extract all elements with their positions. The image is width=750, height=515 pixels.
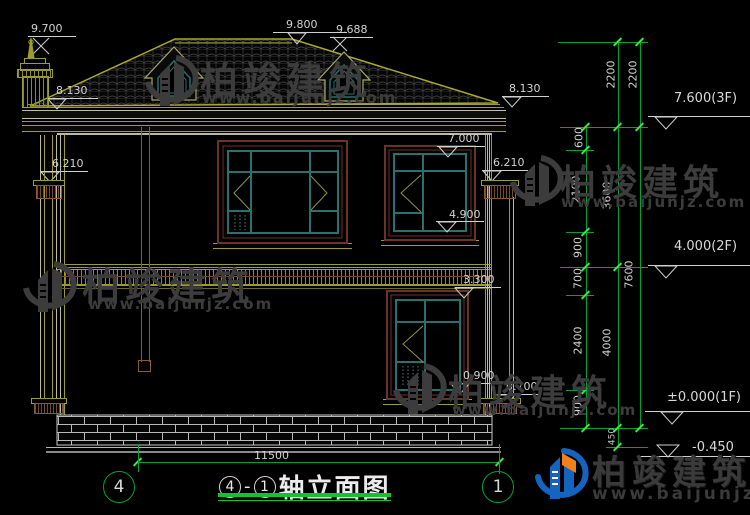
watermark-building-icon xyxy=(396,366,444,414)
watermark-url: www.baijunjz.com xyxy=(561,193,746,211)
watermark-building-icon xyxy=(26,264,74,312)
watermark-url: www.baijunjz.com xyxy=(452,401,637,419)
cad-elevation-drawing: 9.700 9.800 9.688 8.130 8.130 7.000 6.21… xyxy=(0,0,750,515)
watermark-url: www.baijunjz.com xyxy=(88,295,273,313)
brand-logo-icon xyxy=(528,443,592,507)
watermark-building-icon xyxy=(513,158,561,206)
brand-logo: 柏竣建筑 www.baijunjz.com xyxy=(528,443,748,513)
brand-logo-url: www.baijunjz.com xyxy=(592,484,750,504)
watermark-building-icon xyxy=(148,58,196,106)
watermark-url: www.baijunjz.com xyxy=(202,88,397,107)
